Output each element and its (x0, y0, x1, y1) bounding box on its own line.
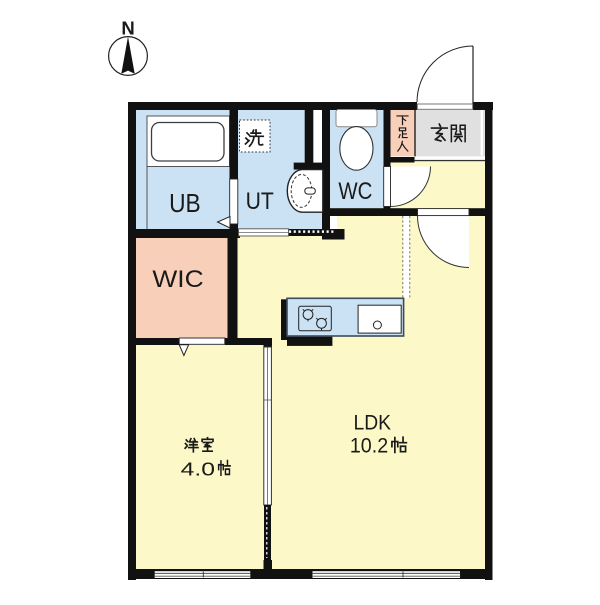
svg-text:UB: UB (169, 188, 201, 218)
svg-text:N: N (121, 18, 134, 39)
svg-text:10.2: 10.2 (350, 434, 388, 457)
svg-text:WIC: WIC (152, 266, 203, 293)
svg-text:LDK: LDK (354, 412, 392, 435)
svg-text:UT: UT (246, 188, 274, 215)
svg-text:4.0: 4.0 (181, 458, 215, 479)
svg-text:WC: WC (338, 178, 372, 205)
